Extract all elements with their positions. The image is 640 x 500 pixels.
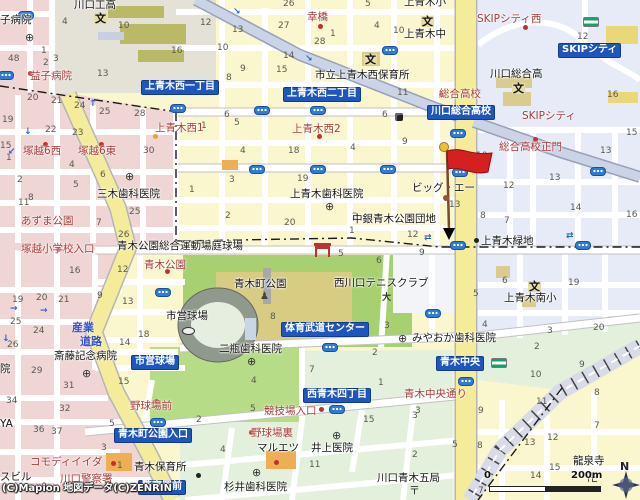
block-number: 32 [59, 405, 70, 414]
block-number: 3 [229, 176, 235, 185]
block-number: 11 [536, 398, 547, 407]
area-name-chip: 上青木西一丁目 [141, 80, 219, 95]
monument-icon: ♟ [260, 292, 269, 302]
place-dot [111, 461, 116, 466]
poi-icon [395, 113, 403, 121]
block-number: 7 [478, 487, 484, 496]
place-name-label: 川口青木五局 [377, 473, 440, 484]
block-number: 4 [62, 18, 68, 27]
block-number: 19 [12, 296, 23, 305]
block-number: 6 [502, 277, 508, 286]
label-layers: ↘↘↑↓↙→→↓⇄⇄ 文文文文文⊕⊕⊕⊕⊕⊕⊕⊕〒卍♟大 41012164812… [0, 0, 640, 500]
intersection-name-label: 上青木西2 [292, 124, 341, 135]
traffic-signal-icon [590, 167, 606, 176]
block-number: 10 [217, 44, 228, 53]
block-number: 2 [225, 212, 231, 221]
block-number: 14 [119, 339, 130, 348]
block-number: 36 [33, 426, 44, 435]
block-number: 15 [118, 378, 129, 387]
place-name-label: 市営球場 [166, 311, 208, 322]
school-icon: 文 [512, 83, 525, 94]
intersection-name-label: 益子病院 [30, 71, 72, 82]
intersection-name-label: SKIPシティ西 [477, 14, 541, 25]
one-way-arrow-icon: ⇄ [566, 232, 574, 241]
block-number: 8 [477, 442, 483, 451]
block-number: 4 [482, 321, 488, 330]
block-number: 11 [309, 461, 320, 470]
block-number: 1 [330, 30, 336, 39]
block-number: 20 [593, 324, 604, 333]
road-name-label: 産業 [72, 322, 94, 333]
scale-zero-label: 0 [484, 471, 491, 481]
place-name-label: 二瓶歯科医院 [219, 344, 282, 355]
area-name-chip: 青木中央 [436, 356, 484, 371]
hospital-icon: ⊕ [247, 356, 256, 367]
place-dot [196, 473, 201, 478]
block-number: 13 [524, 439, 535, 448]
block-number: 12 [577, 33, 588, 42]
block-number: 3 [415, 407, 421, 416]
traffic-signal-icon [575, 241, 591, 250]
block-number: 9 [240, 65, 246, 74]
place-name-label: 中銀青木公園団地 [352, 214, 436, 225]
road-name-label: 道路 [80, 336, 102, 347]
block-number: 12 [117, 266, 128, 275]
intersection-name-label: 幸橋 [307, 12, 328, 23]
block-number: 2 [196, 416, 202, 425]
block-number: 3 [101, 444, 107, 453]
traffic-signal-icon [310, 165, 326, 174]
intersection-name-label: 総合高校 [439, 89, 481, 100]
hospital-icon: ⊕ [398, 333, 407, 344]
intersection-name-label: 青木公園 [144, 260, 186, 271]
block-number: 2 [412, 451, 418, 460]
block-number: 6 [382, 111, 388, 120]
block-number: 16 [171, 47, 182, 56]
block-number: 5 [452, 441, 458, 450]
block-number: 21 [51, 97, 62, 106]
block-number: 1 [349, 227, 355, 236]
intersection-name-label: 上青木西1 [155, 123, 204, 134]
block-number: 14 [283, 52, 294, 61]
intersection-name-label: 塚越6西 [23, 146, 61, 157]
block-number: 1 [117, 462, 123, 471]
place-name-label: 井上医院 [311, 443, 353, 454]
traffic-signal-icon [249, 165, 265, 174]
block-number: 1 [378, 379, 384, 388]
block-number: 13 [549, 174, 560, 183]
block-number: 6 [100, 171, 106, 180]
intersection-name-label: 野球場前 [130, 401, 172, 412]
hospital-icon: ⊕ [125, 171, 134, 182]
block-number: 16 [69, 267, 80, 276]
place-name-label: 三木歯科医院 [97, 189, 160, 200]
block-number: 5 [338, 250, 344, 259]
hospital-icon: ⊕ [25, 32, 34, 43]
block-number: 18 [138, 331, 149, 340]
block-number: 4 [251, 377, 257, 386]
block-number: 31 [63, 382, 74, 391]
scale-distance-label: 200m [571, 471, 602, 481]
block-number: 12 [503, 182, 514, 191]
block-number: 4 [69, 161, 75, 170]
block-number: 13 [122, 298, 133, 307]
traffic-signal-icon [425, 309, 441, 318]
one-way-arrow-icon: → [40, 307, 48, 316]
compass-rose-icon [611, 470, 640, 500]
hospital-icon: ⊕ [82, 368, 91, 379]
intersection-name-label: 競技場入口 [264, 406, 317, 417]
block-number: 6 [224, 111, 230, 120]
place-dot [523, 25, 528, 30]
place-dot [319, 407, 324, 412]
store-icon [491, 358, 507, 368]
block-number: 14 [530, 472, 541, 481]
area-name-chip: SKIPシティ [558, 43, 621, 58]
block-number: 3 [547, 327, 553, 336]
traffic-signal-icon [254, 106, 270, 115]
place-name-label: マルエツ [257, 443, 299, 454]
block-number: 19 [568, 279, 579, 288]
place-name-label: 院 [0, 364, 11, 375]
block-number: 29 [31, 367, 42, 376]
place-name-label: 市立上青木西保育所 [315, 70, 410, 81]
block-number: 2 [17, 176, 23, 185]
place-name-label: 上青木歯科医院 [290, 189, 364, 200]
block-number: 23 [72, 129, 83, 138]
area-name-chip: 上青木西二丁目 [283, 87, 361, 102]
block-number: 1 [6, 154, 12, 163]
block-number: 5 [365, 0, 371, 9]
block-number: 4 [220, 446, 226, 455]
block-number: 15 [276, 66, 287, 75]
block-number: 2 [372, 349, 378, 358]
block-number: 9 [402, 138, 408, 147]
place-name-label: みやおか歯科医院 [412, 333, 496, 344]
block-number: 2 [534, 343, 540, 352]
traffic-signal-icon [382, 46, 398, 55]
hospital-icon: ⊕ [332, 430, 341, 441]
block-number: 22 [45, 126, 56, 135]
block-number: 15 [0, 142, 11, 151]
block-number: 1 [189, 186, 195, 195]
block-number: 15 [626, 129, 637, 138]
block-number: 5 [234, 119, 240, 128]
school-icon: 文 [94, 13, 107, 24]
map-canvas[interactable]: ↘↘↑↓↙→→↓⇄⇄ 文文文文文⊕⊕⊕⊕⊕⊕⊕⊕〒卍♟大 41012164812… [0, 0, 640, 500]
one-way-arrow-icon: → [10, 305, 18, 314]
destination-flag-marker[interactable] [430, 138, 500, 248]
block-number: 26 [283, 0, 294, 9]
block-number: 20 [27, 94, 38, 103]
place-name-label: 上青木小 [404, 0, 446, 8]
one-way-arrow-icon: ↑ [89, 100, 97, 109]
intersection-name-label: 野球場裏 [251, 428, 293, 439]
block-number: 9 [97, 292, 103, 301]
intersection-name-label: 青木中央通り [404, 389, 467, 400]
block-number: 16 [626, 211, 637, 220]
block-number: 15 [549, 464, 560, 473]
block-number: 26 [118, 231, 129, 240]
place-name-label: 川口工高 [74, 0, 116, 11]
scale-bar [489, 486, 601, 492]
hospital-icon: ⊕ [252, 467, 261, 478]
block-number: 24 [33, 327, 44, 336]
place-name-label: 青木保育所 [134, 462, 187, 473]
block-number: 34 [6, 397, 17, 406]
block-number: 4 [240, 147, 246, 156]
block-number: 10 [118, 22, 129, 31]
block-number: 16 [607, 91, 618, 100]
block-number: 13 [232, 26, 243, 35]
traffic-signal-icon [150, 418, 166, 427]
place-name-label: 龍泉寺 [573, 456, 605, 467]
store-icon [583, 17, 599, 27]
block-number: 12 [547, 434, 558, 443]
torii-icon [315, 246, 330, 257]
place-name-label: 杉井歯科医院 [224, 482, 287, 493]
block-number: 21 [58, 296, 69, 305]
hospital-icon: ⊕ [325, 201, 334, 212]
traffic-signal-icon [458, 377, 474, 386]
block-number: 3 [53, 55, 59, 64]
block-number: 7 [594, 422, 600, 431]
block-number: 13 [97, 70, 108, 79]
place-name-label: 青木公園総合運動場庭球場 [117, 241, 243, 252]
block-number: 9 [579, 361, 585, 370]
block-number: 2 [43, 59, 49, 68]
block-number: 7 [309, 366, 315, 375]
block-number: 1 [41, 47, 47, 56]
one-way-arrow-icon: ↓ [24, 128, 32, 137]
place-name-label: YA [0, 419, 13, 430]
block-number: 27 [278, 22, 289, 31]
one-way-arrow-icon: ↘ [305, 55, 313, 64]
block-number: 18 [288, 147, 299, 156]
school-icon: 文 [528, 281, 541, 292]
block-number: 7 [504, 217, 510, 226]
block-number: 25 [129, 208, 140, 217]
block-number: 8 [270, 313, 276, 322]
block-number: 14 [570, 204, 581, 213]
intersection-name-label: 塚越6東 [78, 146, 116, 157]
intersection-name-label: コモディイイダ [30, 457, 102, 468]
block-number: 20 [36, 294, 47, 303]
block-number: 9 [419, 249, 425, 258]
place-dot [318, 24, 323, 29]
block-number: 8 [594, 389, 600, 398]
place-name-label: 上青木中 [404, 29, 446, 40]
map-attribution: (C)Mapion 地図データ(C)ZENRIN [2, 484, 172, 494]
post-icon: 〒 [409, 485, 420, 496]
block-number: 30 [143, 147, 154, 156]
block-number: 20 [284, 219, 295, 228]
place-name-label: 子病院 [0, 15, 32, 26]
traffic-signal-icon [0, 71, 14, 80]
block-number: 6 [376, 257, 382, 266]
area-name-chip: 西青木四丁目 [303, 388, 371, 403]
block-number: 11 [397, 89, 408, 98]
block-number: 37 [51, 428, 62, 437]
traffic-signal-icon [450, 129, 466, 138]
intersection-name-label: あずま公園 [21, 216, 74, 227]
block-number: 7 [96, 219, 102, 228]
block-number: 13 [600, 147, 611, 156]
block-number: 12 [200, 19, 211, 28]
block-number: 4 [374, 22, 380, 31]
block-number: 19 [297, 175, 308, 184]
block-number: 5 [473, 290, 479, 299]
one-way-arrow-icon: ↘ [233, 8, 241, 17]
traffic-signal-icon [170, 104, 186, 113]
place-dot [153, 134, 158, 139]
area-name-chip: 体育武道センター [281, 322, 369, 337]
school-icon: 文 [364, 54, 377, 65]
traffic-signal-icon [310, 106, 326, 115]
intersection-name-label: SKIPシティ [522, 111, 576, 122]
place-name-label: スビル [0, 472, 32, 483]
block-number: 28 [314, 38, 325, 47]
block-number: 12 [407, 231, 418, 240]
block-number: 5 [73, 181, 79, 190]
block-number: 11 [18, 199, 29, 208]
block-number: 10 [393, 27, 404, 36]
block-number: 19 [2, 116, 13, 125]
tennis-icon: 大 [382, 294, 391, 303]
block-number: 5 [250, 405, 256, 414]
area-name-chip: 川口総合高校 [427, 105, 495, 120]
block-number: 10 [530, 371, 541, 380]
place-name-label: 斎藤記念病院 [54, 351, 117, 362]
traffic-signal-icon [380, 165, 396, 174]
place-name-label: 西川口テニスクラブ [334, 278, 429, 289]
place-name-label: 上青木南小 [504, 293, 557, 304]
traffic-signal-icon [322, 343, 338, 352]
traffic-signal-icon [329, 405, 345, 414]
intersection-name-label: 総合高校正門 [499, 142, 562, 153]
block-number: 3 [384, 322, 390, 331]
block-number: 48 [8, 55, 19, 64]
school-icon: 文 [421, 16, 434, 27]
intersection-name-label: 塚越小学校入口 [21, 244, 95, 255]
place-dot [274, 460, 279, 465]
stadium-icon [182, 327, 195, 335]
area-name-chip: 青木町公園入口 [114, 428, 192, 443]
place-name-label: 青木町公園 [234, 279, 287, 290]
block-number: 25 [99, 108, 110, 117]
area-name-chip: 市営球場 [131, 355, 179, 370]
traffic-signal-icon [155, 288, 171, 297]
block-number: 28 [134, 110, 145, 119]
block-number: 9 [478, 407, 484, 416]
block-number: 8 [226, 74, 232, 83]
block-number: 4 [350, 144, 356, 153]
block-number: 24 [74, 102, 85, 111]
block-number: 25 [10, 318, 21, 327]
place-name-label: 川口総合高 [490, 69, 543, 80]
block-number: 26 [7, 341, 18, 350]
block-number: 15 [363, 416, 374, 425]
